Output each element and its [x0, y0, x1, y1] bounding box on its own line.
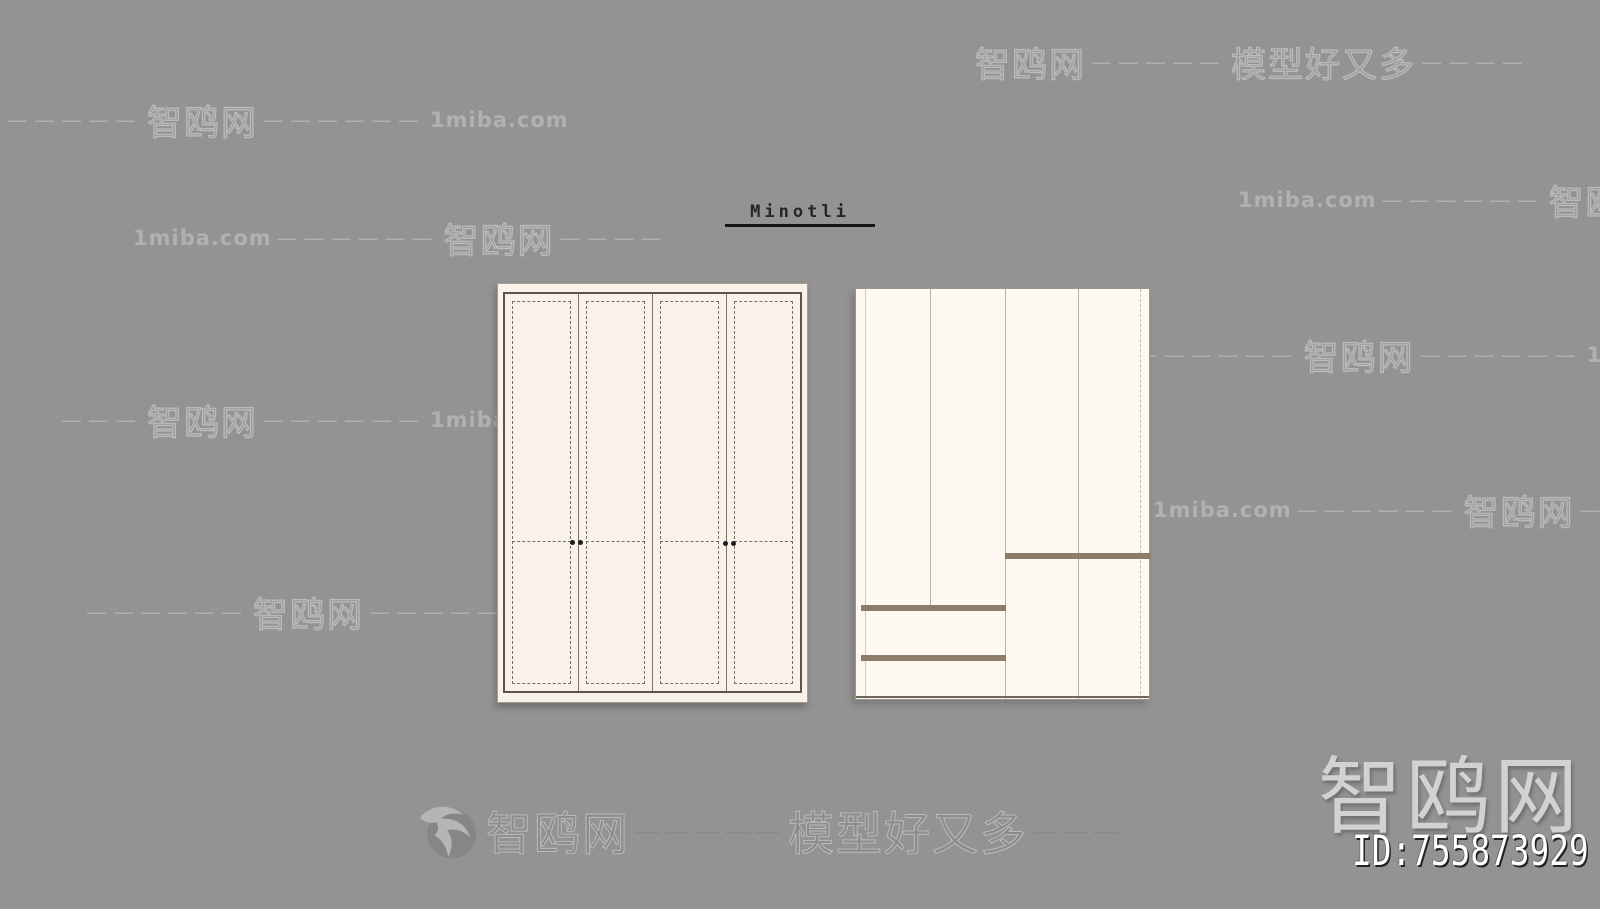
- wardrobe-paneled-doors: [497, 283, 808, 703]
- watermark-dashes: ————: [560, 226, 668, 250]
- watermark-dashes: ——————: [86, 600, 248, 624]
- drawer-divider: [861, 655, 1006, 661]
- watermark-dashes: —————: [7, 108, 142, 132]
- wardrobe-door: [727, 294, 800, 691]
- watermark-dashes: ———: [61, 408, 142, 432]
- watermark-row: ——— 智鸥网 —————— 1miba.com: [56, 396, 569, 444]
- door-rail-line: [586, 541, 645, 542]
- wardrobe-frame: [503, 292, 802, 693]
- cabinet-base-line: [856, 696, 1149, 698]
- section-divider: [1005, 553, 1151, 559]
- door-separator: [930, 289, 931, 607]
- watermark-dashes: ——————: [263, 408, 425, 432]
- watermark-row: 1miba.com —————— 智鸥网 —: [1238, 176, 1600, 224]
- watermark-site-text: 智鸥网: [1464, 485, 1575, 536]
- watermark-row: 1miba.com —————— 智鸥网 ————: [133, 214, 673, 262]
- watermark-row: ————— 智鸥网 —————— 1miba.com: [2, 96, 569, 144]
- door-panel-molding: [512, 301, 571, 684]
- watermark-domain-text: 1miba.com: [1153, 498, 1292, 522]
- watermark-dashes: —————: [1091, 50, 1226, 74]
- model-id-text: ID:755873929: [1352, 826, 1589, 875]
- cabinet-side-edge: [865, 289, 866, 699]
- watermark-dashes: ——————: [1137, 343, 1299, 367]
- wardrobe-door: [653, 294, 727, 691]
- watermark-dashes: ——————: [1297, 498, 1459, 522]
- door-separator: [1078, 289, 1079, 699]
- brand-label: Minotli: [725, 202, 875, 227]
- door-rail-line: [734, 541, 793, 542]
- watermark-dashes: —————: [1580, 498, 1600, 522]
- watermark-site-text: 智鸥网: [1304, 330, 1415, 381]
- drawer-divider: [861, 605, 1006, 611]
- watermark-site-text: 智鸥网: [975, 37, 1086, 88]
- watermarked-product-image: 智鸥网 ————— 模型好又多 ———— ————— 智鸥网 —————— 1m…: [0, 0, 1600, 909]
- watermark-dashes: ——————: [263, 108, 425, 132]
- watermark-dashes: ——————: [277, 226, 439, 250]
- wardrobe-door: [579, 294, 653, 691]
- watermark-site-text: 智鸥网: [1549, 175, 1600, 226]
- watermark-dashes: ————: [1421, 50, 1529, 74]
- watermark-slogan-text: 模型好又多: [1231, 37, 1416, 88]
- door-knob: [570, 540, 575, 545]
- cabinet-side-edge: [1140, 289, 1141, 699]
- seagull-logo-icon: [416, 799, 482, 863]
- watermark-dashes: ——————: [1420, 343, 1582, 367]
- door-panel-molding: [586, 301, 645, 684]
- watermark-site-text: 智鸥网: [147, 395, 258, 446]
- door-knob: [578, 540, 583, 545]
- watermark-domain-text: 1miba.com: [133, 226, 272, 250]
- watermark-dashes: ——————: [1382, 188, 1544, 212]
- wardrobe-door: [505, 294, 579, 691]
- site-logo-watermark: 智鸥网 ————— 模型好又多 ———: [416, 798, 1126, 864]
- door-knob: [723, 541, 728, 546]
- door-rail-line: [512, 541, 571, 542]
- watermark-slogan-text: 模型好又多: [788, 798, 1028, 864]
- door-separator: [1005, 289, 1006, 699]
- brand-label-text: Minotli: [725, 202, 875, 222]
- watermark-domain-text: 1miba.com: [1238, 188, 1377, 212]
- watermark-site-text: 智鸥网: [147, 95, 258, 146]
- door-panel-molding: [660, 301, 719, 684]
- door-panel-molding: [734, 301, 793, 684]
- watermark-site-text: 智鸥网: [253, 587, 364, 638]
- brand-underline: [725, 224, 875, 227]
- watermark-domain-text: 1miba.com: [1587, 343, 1600, 367]
- door-knob: [731, 541, 736, 546]
- watermark-row: 智鸥网 ————— 模型好又多 ————: [975, 38, 1534, 86]
- watermark-domain-text: 1miba.com: [430, 108, 569, 132]
- wardrobe-flat-doors-drawers: [855, 288, 1150, 700]
- watermark-site-text: 智鸥网: [444, 213, 555, 264]
- watermark-dashes: —————: [634, 816, 784, 847]
- watermark-row: 1miba.com —————— 智鸥网 —————: [1153, 486, 1600, 534]
- watermark-dashes: ———: [1032, 816, 1122, 847]
- watermark-site-text: 智鸥网: [486, 798, 630, 864]
- door-rail-line: [660, 541, 719, 542]
